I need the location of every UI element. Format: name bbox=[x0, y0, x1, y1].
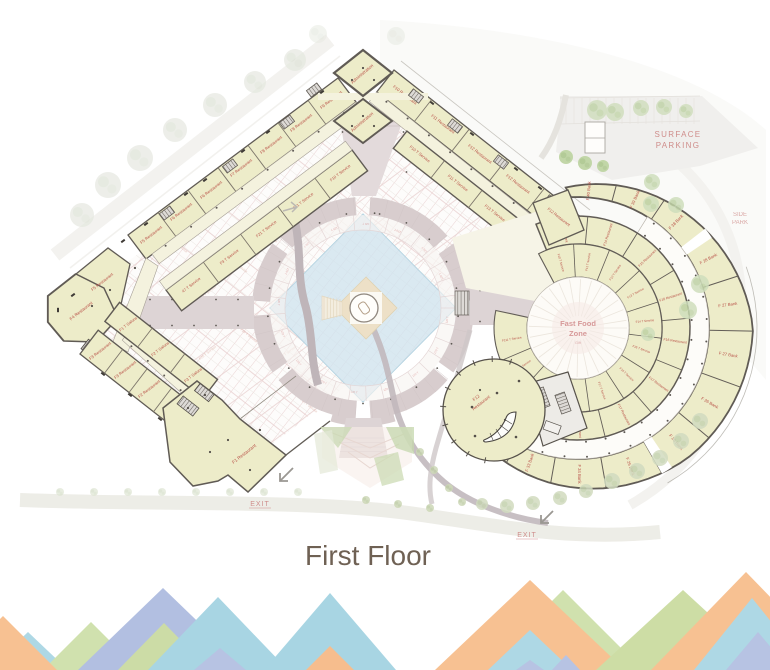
svg-text:EXIT: EXIT bbox=[517, 532, 537, 539]
svg-text:First Floor: First Floor bbox=[305, 540, 431, 571]
svg-text:EXIT: EXIT bbox=[250, 501, 270, 508]
svg-text:PARK: PARK bbox=[732, 220, 748, 226]
svg-text:SIDE: SIDE bbox=[733, 212, 747, 218]
svg-text:SURFACE: SURFACE bbox=[655, 130, 702, 139]
svg-text:PARKING: PARKING bbox=[656, 141, 701, 150]
